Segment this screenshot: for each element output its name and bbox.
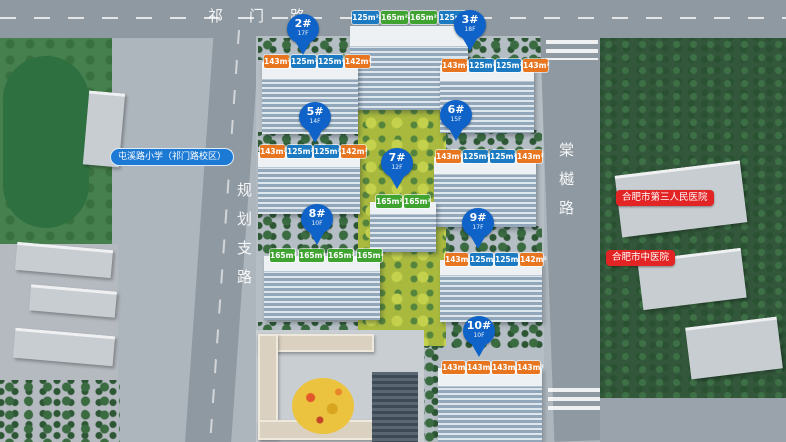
building-pin-7: 7# 12F bbox=[381, 148, 413, 178]
area-label: 125m² bbox=[496, 59, 521, 72]
area-label: 143m² bbox=[442, 59, 467, 72]
pin-label: 7# bbox=[381, 151, 413, 164]
pin-floors: 17F bbox=[462, 224, 494, 231]
area-label: 125m² bbox=[318, 55, 343, 68]
tower-8 bbox=[264, 256, 380, 320]
tower-7 bbox=[370, 202, 436, 252]
pin-floors: 12F bbox=[381, 164, 413, 171]
area-label: 143m² bbox=[517, 361, 540, 374]
building-pin-5: 5# 14F bbox=[299, 102, 331, 132]
pin-label: 5# bbox=[299, 105, 331, 118]
area-label: 125m² bbox=[463, 150, 488, 163]
hospital-building bbox=[685, 317, 783, 380]
hospital-third-label: 合肥市第三人民医院 bbox=[616, 190, 714, 206]
area-label: 143m² bbox=[264, 55, 289, 68]
tower-10 bbox=[438, 368, 542, 442]
area-label: 142m² bbox=[345, 55, 370, 68]
area-label: 143m² bbox=[445, 253, 468, 266]
right-side-road bbox=[600, 398, 786, 442]
pin-label: 2# bbox=[287, 17, 319, 30]
pin-label: 3# bbox=[454, 13, 486, 26]
area-label: 125m² bbox=[495, 253, 518, 266]
area-label: 143m² bbox=[260, 145, 285, 158]
pin-floors: 17F bbox=[287, 30, 319, 37]
pin-floors: 10F bbox=[301, 220, 333, 227]
area-label: 165m² bbox=[381, 11, 408, 24]
area-label: 143m² bbox=[436, 150, 461, 163]
area-label: 125m² bbox=[469, 59, 494, 72]
pin-floors: 15F bbox=[440, 116, 472, 123]
pin-label: 10# bbox=[463, 319, 495, 332]
right-road-label: 棠樾路 bbox=[556, 142, 577, 302]
area-label: 165m² bbox=[357, 249, 382, 262]
crosswalk bbox=[546, 40, 598, 60]
area-label: 142m² bbox=[520, 253, 543, 266]
area-label: 165m² bbox=[270, 249, 295, 262]
playground bbox=[292, 378, 354, 434]
pin-floors: 14F bbox=[299, 118, 331, 125]
area-label: 125m² bbox=[490, 150, 515, 163]
tree-belt bbox=[0, 380, 120, 442]
crosswalk bbox=[548, 388, 600, 410]
pin-label: 6# bbox=[440, 103, 472, 116]
pin-floors: 10F bbox=[463, 332, 495, 339]
building-pin-8: 8# 10F bbox=[301, 204, 333, 234]
building-pin-6: 6# 15F bbox=[440, 100, 472, 130]
glass-building bbox=[372, 372, 418, 442]
hospital-tcm-label: 合肥市中医院 bbox=[606, 250, 675, 266]
tree-area bbox=[600, 38, 786, 442]
area-label: 165m² bbox=[328, 249, 353, 262]
area-label: 143m² bbox=[442, 361, 465, 374]
tower-9 bbox=[440, 260, 542, 322]
pin-label: 8# bbox=[301, 207, 333, 220]
building-pin-3: 3# 18F bbox=[454, 10, 486, 40]
pin-label: 9# bbox=[462, 211, 494, 224]
building-pin-9: 9# 17F bbox=[462, 208, 494, 238]
area-label: 125m² bbox=[352, 11, 379, 24]
area-label: 143m² bbox=[517, 150, 542, 163]
aerial-site-map: 祁门路 规划支路 125m² 165m² 165m² 125m² 143m² 1… bbox=[0, 0, 786, 442]
area-label: 143m² bbox=[492, 361, 515, 374]
area-label: 143m² bbox=[523, 59, 548, 72]
building-pin-2: 2# 17F bbox=[287, 14, 319, 44]
left-road-label: 规划支路 bbox=[234, 182, 255, 342]
area-label: 142m² bbox=[341, 145, 366, 158]
running-track bbox=[3, 56, 89, 228]
area-label: 165m² bbox=[410, 11, 437, 24]
building-pin-10: 10# 10F bbox=[463, 316, 495, 346]
area-label: 165m² bbox=[404, 195, 430, 208]
pin-floors: 18F bbox=[454, 26, 486, 33]
school-label: 屯溪路小学（祁门路校区） bbox=[110, 148, 234, 166]
